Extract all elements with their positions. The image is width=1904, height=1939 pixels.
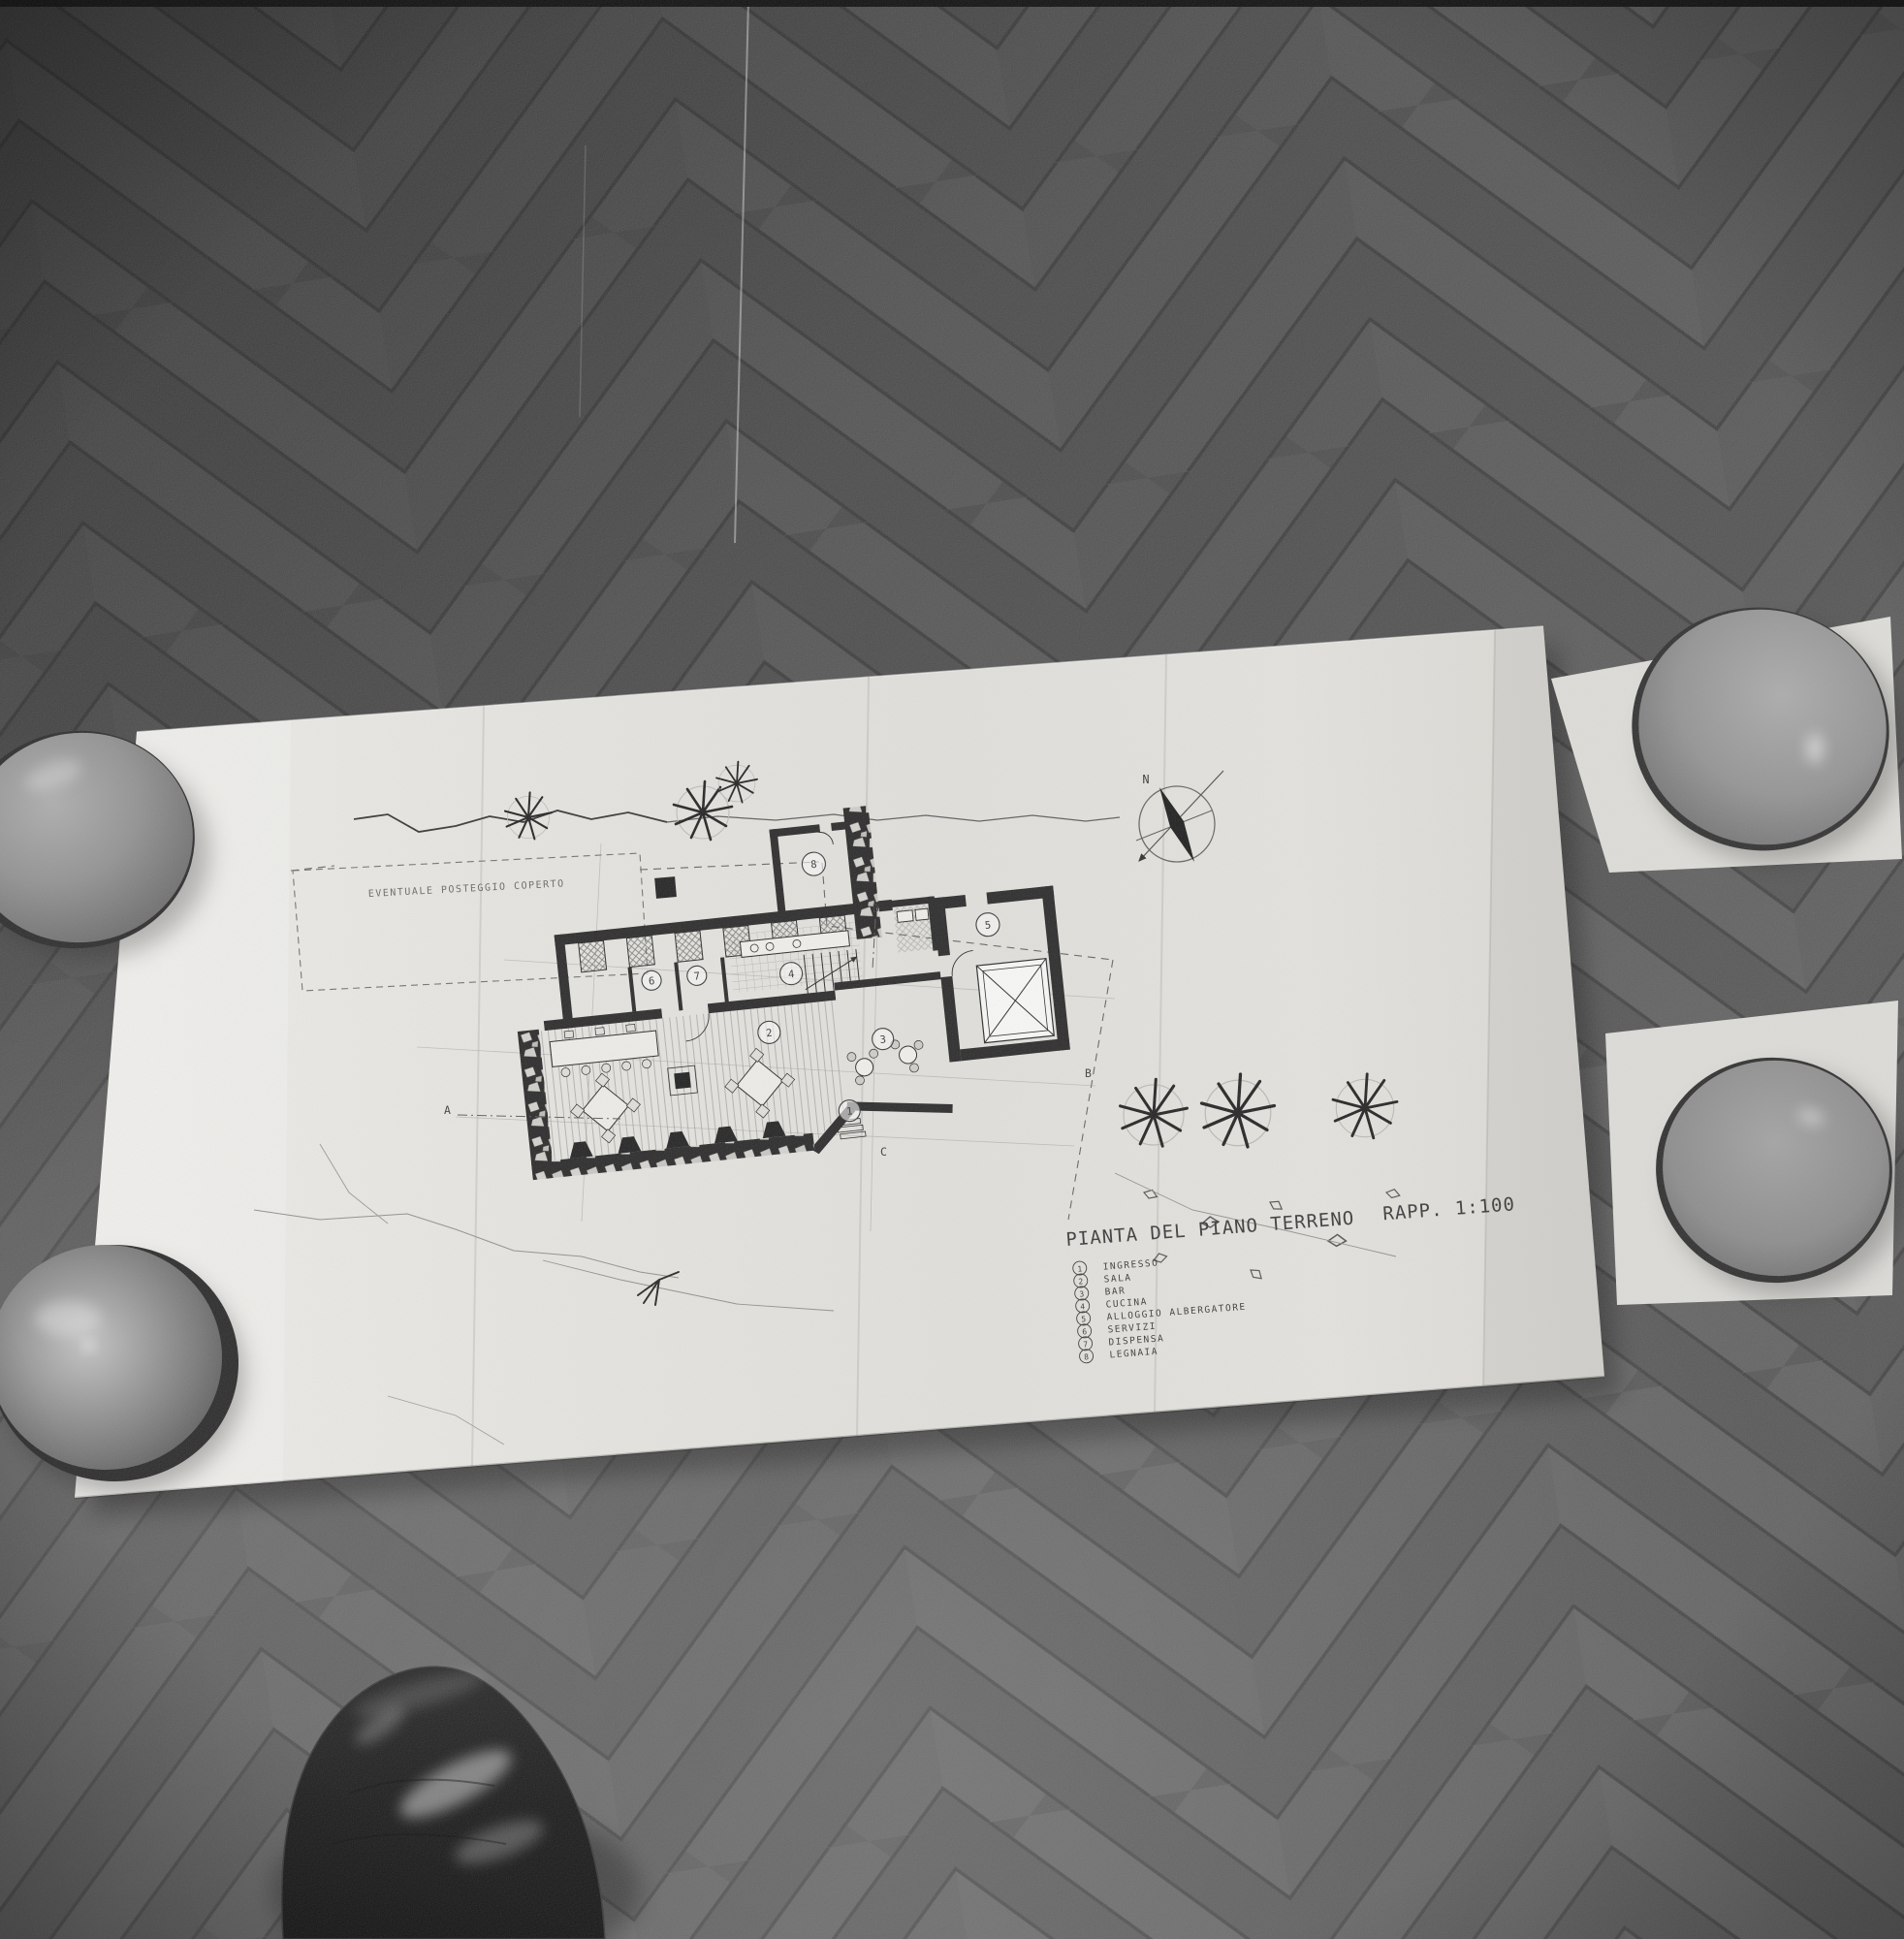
photo-frame: N EVENTUALE POSTEGGIO COPERTO bbox=[0, 0, 1904, 1939]
photo-vignette bbox=[0, 0, 1904, 1939]
